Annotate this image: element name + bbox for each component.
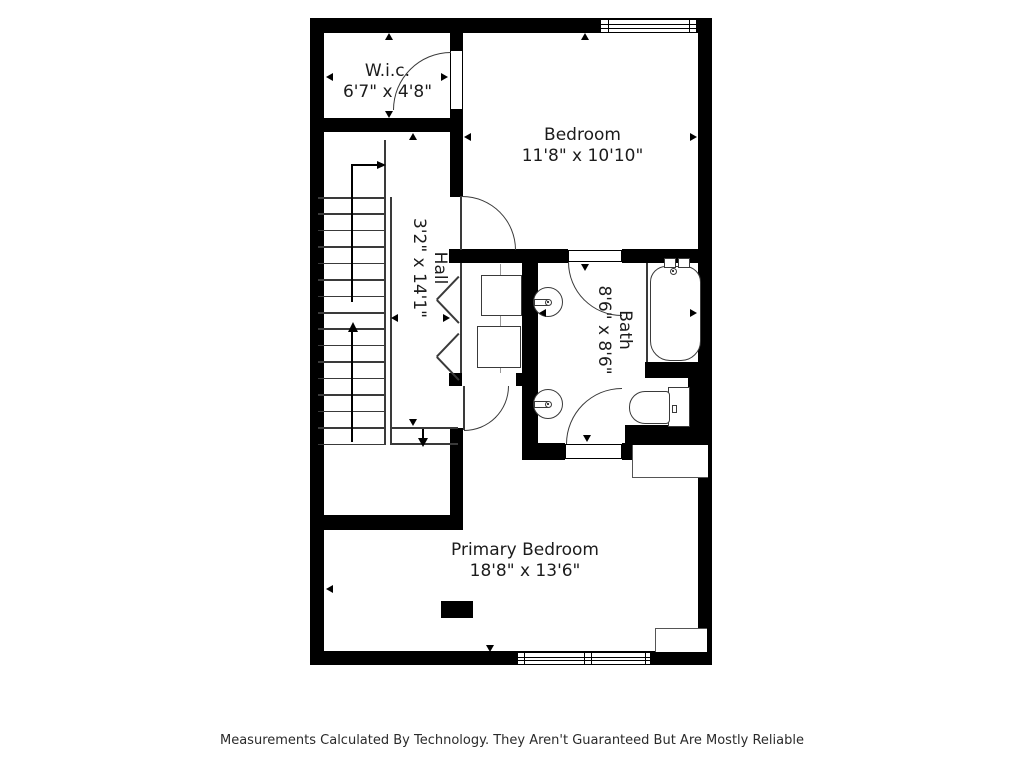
stair-edge-line bbox=[384, 140, 386, 445]
primary-bedroom-window bbox=[517, 652, 651, 665]
measurement-disclaimer: Measurements Calculated By Technology. T… bbox=[0, 733, 1024, 748]
wall-stair-bottom bbox=[310, 515, 463, 530]
room-name: Hall bbox=[429, 208, 450, 328]
room-dimensions: 8'6" x 8'6" bbox=[593, 270, 614, 390]
primary-door-swing bbox=[464, 386, 509, 431]
stair-arrow-head-right bbox=[377, 161, 386, 169]
stair-landing-line bbox=[390, 427, 458, 429]
window-frame-cap bbox=[591, 653, 592, 664]
floor-plan: W.i.c. 6'7" x 4'8" Bedroom 11'8" x 10'10… bbox=[0, 0, 1024, 768]
dimension-tick bbox=[581, 33, 589, 40]
window-pane-line bbox=[601, 28, 696, 29]
room-dimensions: 11'8" x 10'10" bbox=[500, 146, 665, 167]
dimension-tick bbox=[486, 645, 494, 652]
wall bbox=[450, 110, 463, 197]
window-frame-cap bbox=[524, 653, 525, 664]
wall-bath-bottom bbox=[625, 425, 712, 447]
wall-bath-left bbox=[522, 249, 538, 445]
stair-arrow-shaft bbox=[351, 330, 353, 442]
bedroom-door-swing bbox=[462, 196, 516, 250]
dimension-tick bbox=[385, 33, 393, 40]
sink-drain bbox=[545, 299, 552, 306]
dimension-tick bbox=[464, 133, 471, 141]
bedroom-window bbox=[600, 19, 697, 33]
wall-bath-bottom bbox=[522, 443, 565, 460]
room-name: Primary Bedroom bbox=[420, 540, 630, 561]
wall-bottom bbox=[310, 651, 712, 665]
dimension-tick bbox=[409, 419, 417, 426]
primary-bedroom-corner-niche bbox=[655, 628, 707, 652]
dimension-tick bbox=[690, 133, 697, 141]
dimension-tick bbox=[326, 585, 333, 593]
room-label-primary-bedroom: Primary Bedroom 18'8" x 13'6" bbox=[420, 540, 630, 582]
stair-arrow-shaft bbox=[352, 164, 378, 166]
tub-faucet bbox=[664, 258, 676, 268]
room-dimensions: 6'7" x 4'8" bbox=[315, 82, 460, 103]
dimension-tick bbox=[391, 314, 398, 322]
tub-alcove-line bbox=[646, 263, 648, 362]
dimension-tick bbox=[539, 309, 546, 317]
wall-stub bbox=[441, 601, 473, 618]
bath-bottom-door-leaf bbox=[565, 444, 622, 459]
room-dimensions: 3'2" x 14'1" bbox=[408, 208, 429, 328]
bath-bottom-door-swing bbox=[566, 388, 622, 444]
dimension-tick bbox=[385, 111, 393, 118]
window-frame-cap bbox=[645, 653, 646, 664]
stair-tread bbox=[318, 444, 384, 446]
sink-drain bbox=[545, 401, 552, 408]
bifold-door-panel bbox=[436, 333, 459, 357]
stair-arrow-shaft bbox=[351, 164, 353, 302]
room-name: W.i.c. bbox=[315, 61, 460, 82]
room-dimensions: 18'8" x 13'6" bbox=[420, 561, 630, 582]
dimension-tick bbox=[581, 264, 589, 271]
dimension-tick bbox=[583, 435, 591, 442]
closet-shelf bbox=[481, 275, 522, 316]
stair-arrow-head-down bbox=[418, 438, 428, 447]
dimension-tick bbox=[409, 133, 417, 140]
closet-shelf bbox=[477, 326, 521, 368]
room-label-bath: Bath 8'6" x 8'6" bbox=[593, 270, 635, 390]
stair-tread bbox=[318, 312, 384, 314]
window-frame-cap bbox=[584, 653, 585, 664]
wall bbox=[450, 33, 463, 50]
wall-bedroom-bottom bbox=[449, 249, 568, 263]
wall-wic-bottom bbox=[310, 118, 463, 132]
window-frame-cap bbox=[608, 20, 609, 32]
stair-arrow-head-up bbox=[348, 322, 358, 332]
toilet-flush-button bbox=[672, 405, 677, 413]
room-label-bedroom: Bedroom 11'8" x 10'10" bbox=[500, 125, 665, 167]
tub-faucet bbox=[678, 258, 690, 268]
toilet-bowl bbox=[629, 391, 670, 424]
room-label-wic: W.i.c. 6'7" x 4'8" bbox=[315, 61, 460, 103]
dimension-tick bbox=[690, 309, 697, 317]
primary-bedroom-niche bbox=[632, 445, 708, 478]
bath-top-door-leaf bbox=[568, 250, 622, 262]
window-pane-line bbox=[601, 24, 696, 25]
room-name: Bedroom bbox=[500, 125, 665, 146]
tub-drain bbox=[670, 268, 677, 275]
window-frame-cap bbox=[689, 20, 690, 32]
room-name: Bath bbox=[614, 270, 635, 390]
room-label-hall: Hall 3'2" x 14'1" bbox=[408, 208, 450, 328]
wall-hall-bottom bbox=[516, 373, 538, 386]
closet-front-line bbox=[460, 263, 462, 373]
